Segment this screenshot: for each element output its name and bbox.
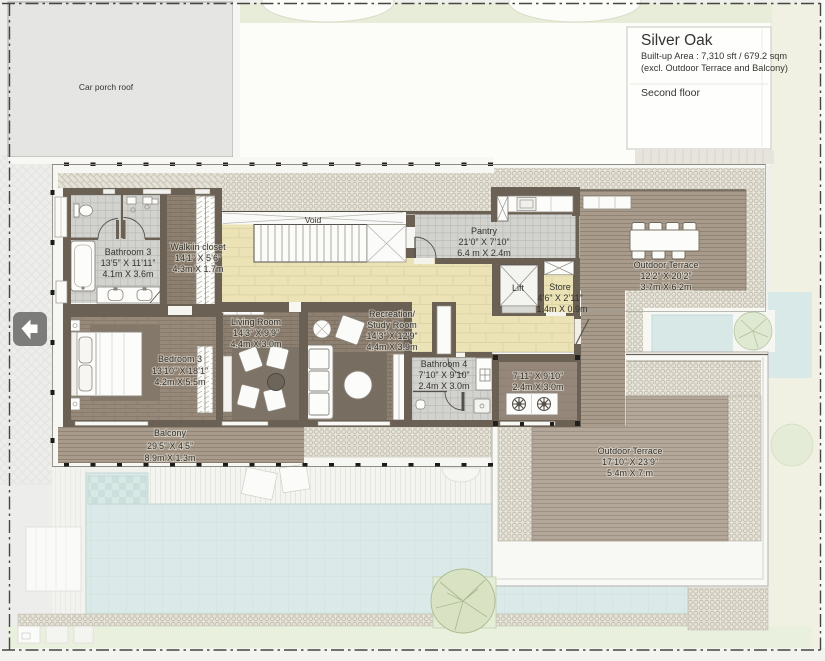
svg-text:4.4m X 3.9m: 4.4m X 3.9m [366, 342, 417, 352]
svg-text:14’3” X 12’9”: 14’3” X 12’9” [366, 331, 417, 341]
svg-text:Walk in closet: Walk in closet [170, 242, 226, 252]
svg-text:Silver Oak: Silver Oak [641, 32, 713, 49]
svg-text:12’2” X 20’2”: 12’2” X 20’2” [640, 271, 691, 281]
svg-text:Bathroom 3: Bathroom 3 [105, 247, 152, 257]
svg-text:8.9m X 1.3m: 8.9m X 1.3m [144, 453, 195, 463]
svg-text:Second floor: Second floor [641, 87, 700, 99]
svg-text:4.4m X 3.0m: 4.4m X 3.0m [230, 339, 281, 349]
svg-text:5.4m X 7.m: 5.4m X 7.m [607, 468, 653, 478]
svg-text:2.4m X 3.0m: 2.4m X 3.0m [418, 381, 469, 391]
svg-text:Void: Void [305, 215, 322, 225]
svg-text:3.7m X 6.2m: 3.7m X 6.2m [640, 282, 691, 292]
svg-text:7’11” X 9’10”: 7’11” X 9’10” [513, 371, 563, 381]
svg-text:29’5” X 4’5”: 29’5” X 4’5” [147, 441, 193, 451]
svg-text:2.4m X 3.0m: 2.4m X 3.0m [512, 382, 563, 392]
svg-text:21’0” X 7’10”: 21’0” X 7’10” [458, 237, 509, 247]
svg-text:Study Room: Study Room [367, 320, 417, 330]
svg-text:Recreation/: Recreation/ [369, 309, 416, 319]
svg-text:6.4 m X 2.4m: 6.4 m X 2.4m [457, 248, 511, 258]
svg-text:Outdoor Terrace: Outdoor Terrace [598, 446, 663, 456]
svg-text:Built-up Area : 7,310 sft / 67: Built-up Area : 7,310 sft / 679.2 sqm [641, 51, 787, 61]
svg-text:14’3” X 9’9”: 14’3” X 9’9” [233, 328, 279, 338]
svg-text:4’6” X 2’11”: 4’6” X 2’11” [537, 293, 582, 303]
svg-text:Bedroom 3: Bedroom 3 [158, 354, 202, 364]
svg-text:4.3m X 1.7m: 4.3m X 1.7m [172, 264, 223, 274]
svg-text:Store: Store [549, 282, 571, 292]
svg-text:17’10” X 23’9”: 17’10” X 23’9” [602, 457, 658, 467]
svg-text:Outdoor Terrace: Outdoor Terrace [634, 260, 699, 270]
svg-text:4.1m X 3.6m: 4.1m X 3.6m [102, 269, 153, 279]
svg-text:13’5” X 11’11”: 13’5” X 11’11” [101, 258, 156, 268]
svg-text:Bathroom 4: Bathroom 4 [421, 359, 468, 369]
svg-text:1.4m X 0.9m: 1.4m X 0.9m [536, 304, 587, 314]
svg-text:14’1” X 5’6”: 14’1” X 5’6” [175, 253, 221, 263]
svg-text:Car porch roof: Car porch roof [79, 82, 134, 92]
svg-text:Balcony: Balcony [154, 428, 187, 438]
svg-text:7’10” X 9’10”: 7’10” X 9’10” [418, 370, 469, 380]
svg-text:(excl. Outdoor Terrace and Bal: (excl. Outdoor Terrace and Balcony) [641, 63, 788, 73]
svg-text:Living Room: Living Room [231, 317, 281, 327]
svg-text:4.2m X 5.5m: 4.2m X 5.5m [154, 377, 205, 387]
svg-text:13’10” X 18’1”: 13’10” X 18’1” [152, 366, 208, 376]
svg-text:Pantry: Pantry [471, 226, 498, 236]
svg-text:Lift: Lift [512, 283, 525, 293]
